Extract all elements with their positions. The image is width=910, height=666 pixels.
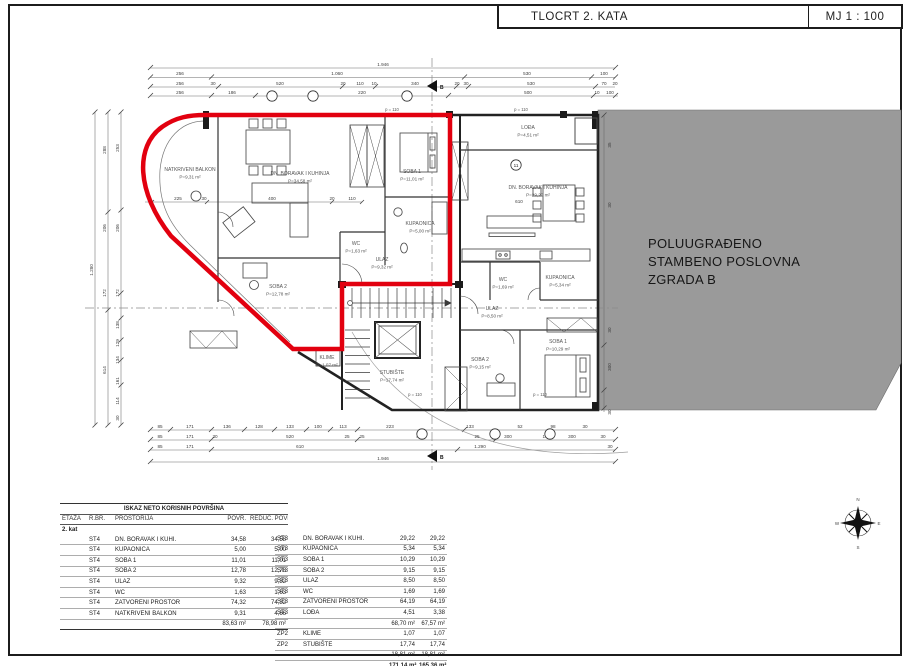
area-table-cell: ST4 — [87, 577, 113, 588]
dim-label: 25 — [359, 434, 365, 439]
dim-label: 225 — [174, 196, 182, 201]
building-b-line1: POLUUGRAĐENO — [648, 236, 762, 251]
area-table-cell: 9,32 — [210, 577, 248, 588]
area-table-cell — [60, 545, 87, 556]
dim-label: 110 — [348, 196, 356, 201]
area-table-cell: ST4 — [87, 545, 113, 556]
room-name-label: SOBA 1 — [403, 169, 421, 175]
dim-label: 1.290 — [474, 444, 486, 449]
area-table-cell: DN. BORAVAK I KUHI. — [301, 534, 387, 544]
area-table-cell: SOBA 1 — [301, 555, 387, 566]
area-table-cell: 12,78 — [210, 566, 248, 577]
area-table-cell: 1,07 — [417, 629, 447, 640]
dim-label: 520 — [276, 81, 284, 86]
dim-label: 256 — [176, 71, 184, 76]
area-table-cell: 8,50 — [417, 576, 447, 587]
dim-label: 30 — [582, 424, 588, 429]
compass-letter: N — [856, 497, 859, 502]
dim-label: 1.060 — [331, 71, 343, 76]
area-table-cell: ZATVORENI PROSTOR — [113, 598, 210, 609]
dim-label: 30 — [600, 434, 606, 439]
area-table-cell: 9,15 — [387, 565, 417, 576]
room-name-label: KUPAONICA — [545, 275, 575, 281]
axis-bubble — [417, 429, 427, 439]
area-table-cell: WC — [113, 587, 210, 598]
dim-label: 340 — [411, 81, 419, 86]
area-table-cell: 9,31 — [210, 608, 248, 619]
dim-label: 288 — [102, 146, 107, 154]
area-table-cell: ST4 — [87, 535, 113, 545]
dim-label: 530 — [527, 81, 535, 86]
area-table-cell: 68,70 m² — [387, 618, 417, 629]
area-table-cell: 64,19 — [417, 597, 447, 608]
area-table-cell — [275, 618, 301, 629]
area-table-cell: 171,14 m² — [387, 661, 417, 666]
compass-letter: S — [856, 545, 859, 550]
area-table-cell: 18,81 m² — [387, 650, 417, 661]
room-area-label: P=9,32 m² — [371, 265, 393, 270]
dim-label: 85 — [157, 444, 163, 449]
area-table-cell — [60, 566, 87, 577]
compass-letter: E — [877, 521, 880, 526]
dim-label: 610 — [515, 199, 523, 204]
area-table-st4: ISKAZ NETO KORISNIH POVRŠINA ETAŽA R.BR.… — [60, 503, 288, 630]
col-etaza: ETAŽA — [60, 514, 87, 525]
dim-label: 186 — [228, 90, 236, 95]
armchair-st4 — [223, 207, 255, 238]
area-table-cell: DN. BORAVAK I KUHI. — [113, 535, 210, 545]
dim-label: 134 — [115, 356, 120, 364]
dim-label: 30 — [607, 444, 613, 449]
area-table-cell: KLIME — [301, 629, 387, 640]
area-table-cell: ST3 — [275, 534, 301, 544]
room-area-label: P=9,15 m² — [469, 365, 491, 370]
area-table-cell: SOBA 1 — [113, 555, 210, 566]
col-reduc: REDUC. POVRŠINA — [248, 514, 288, 525]
area-table-cell: ST3 — [275, 597, 301, 608]
area-table-cell: 4,51 — [387, 608, 417, 619]
area-table-cell: ST4 — [87, 566, 113, 577]
axis-bubble — [545, 429, 555, 439]
bed-st4 — [400, 133, 437, 172]
dim-label: 20 — [329, 196, 335, 201]
axis-bubble — [308, 91, 318, 101]
dim-label: 30 — [607, 202, 612, 208]
dim-label: 300 — [607, 363, 612, 371]
area-table-cell — [275, 661, 301, 666]
dim-label: 30 — [210, 81, 216, 86]
area-table-cell: 1,69 — [387, 586, 417, 597]
dim-label: 300 — [504, 434, 512, 439]
wall-columns — [203, 111, 598, 410]
sofa-st4 — [252, 183, 308, 203]
area-table-cell: ZP2 — [275, 639, 301, 650]
room-area-label: P=1,69 m² — [492, 285, 514, 290]
area-table-cell: ST4 — [87, 608, 113, 619]
area-table-cell: 1,07 — [387, 629, 417, 640]
dim-label: 1.946 — [377, 62, 389, 67]
area-table-cell — [301, 618, 387, 629]
dim-label: 400 — [268, 196, 276, 201]
room-area-label: P=29,22 m² — [526, 193, 550, 198]
room-area-label: P=10,29 m² — [546, 347, 570, 352]
dim-label: 30 — [607, 409, 612, 415]
room-name-label: SOBA 1 — [549, 339, 567, 345]
area-table-cell: WC — [301, 586, 387, 597]
dim-label: 138 — [115, 321, 120, 329]
dim-label: 25 — [344, 434, 350, 439]
area-table-cell: 34,58 — [210, 535, 248, 545]
dim-label: 25 — [474, 434, 480, 439]
area-table-cell: 9,15 — [417, 565, 447, 576]
bed-st3 — [545, 355, 590, 397]
dim-label: 52 — [517, 424, 523, 429]
axis-bubble — [267, 91, 277, 101]
dim-label: 10 — [594, 90, 600, 95]
dim-label: 85 — [157, 424, 163, 429]
area-table-cell: 11,01 — [210, 555, 248, 566]
room-name-label: ULAZ — [486, 306, 499, 312]
area-table-cell: 5,34 — [417, 544, 447, 555]
area-table-cell: 165,36 m² — [417, 661, 447, 666]
dim-label: 128 — [255, 424, 263, 429]
room-area-label: P=8,50 m² — [481, 314, 503, 319]
area-table-cell: STUBIŠTE — [301, 639, 387, 650]
dim-label: 1.280 — [89, 264, 94, 276]
area-table-cell: KUPAONICA — [301, 544, 387, 555]
dim-label: 610 — [296, 444, 304, 449]
parapet-label: p = 110 — [533, 392, 547, 397]
area-table-cell — [301, 650, 387, 661]
dim-label: 171 — [186, 424, 194, 429]
area-table-cell: ST4 — [87, 555, 113, 566]
dim-label: 136 — [223, 424, 231, 429]
dim-label: 133 — [466, 424, 474, 429]
dim-label: 110 — [356, 81, 364, 86]
area-table-cell: 74,32 — [210, 598, 248, 609]
room-name-label: LOĐA — [521, 125, 535, 131]
dim-label: 223 — [386, 424, 394, 429]
dim-label: 30 — [201, 196, 207, 201]
dining-table-st4 — [246, 130, 290, 164]
st4-total-povr: 83,63 m² — [210, 619, 248, 630]
room-area-label: P=34,58 m² — [288, 179, 312, 184]
area-table-title: ISKAZ NETO KORISNIH POVRŠINA — [60, 504, 288, 515]
dim-label: 1.946 — [377, 456, 389, 461]
area-table-cell: ULAZ — [301, 576, 387, 587]
room-name-label: ULAZ — [376, 257, 389, 263]
area-table-cell: ST3 — [275, 586, 301, 597]
area-table-cell — [301, 661, 387, 666]
dim-label: 172 — [115, 289, 120, 297]
area-table-cell: ST4 — [87, 587, 113, 598]
area-table-cell: LOĐA — [301, 608, 387, 619]
area-table-cell: 67,57 m² — [417, 618, 447, 629]
dim-label: 98 — [550, 424, 556, 429]
dim-label: 70 — [601, 81, 607, 86]
axis-bubble — [490, 429, 500, 439]
area-table-cell: ZATVORENI PROSTOR — [301, 597, 387, 608]
area-table-cell: 5,00 — [210, 545, 248, 556]
room-area-label: P=5,00 m² — [409, 229, 431, 234]
room-name-label: SOBA 2 — [471, 357, 489, 363]
dim-label: 253 — [115, 144, 120, 152]
area-table-cell: 1,63 — [210, 587, 248, 598]
dim-label: 206 — [102, 224, 107, 232]
dim-label: 530 — [523, 71, 531, 76]
room-area-label: P=4,51 m² — [517, 133, 539, 138]
dim-label: 220 — [358, 90, 366, 95]
dim-label: 30 — [463, 81, 469, 86]
parapet-label: p = 110 — [408, 392, 422, 397]
dim-label: 256 — [176, 81, 184, 86]
dim-label: 20 — [340, 81, 346, 86]
dim-label: 161 — [115, 377, 120, 385]
room-name-label: KUPAONICA — [405, 221, 435, 227]
area-table-cell: 29,22 — [387, 534, 417, 544]
room-name-label: WC — [352, 241, 361, 247]
area-table-cell: ST3 — [275, 608, 301, 619]
room-name-label: STUBIŠTE — [380, 369, 405, 376]
building-b-line2: STAMBENO POSLOVNA — [648, 254, 800, 269]
dim-label: 520 — [286, 434, 294, 439]
parapet-label: p = 110 — [385, 107, 399, 112]
dim-label: 100 — [314, 424, 322, 429]
area-table-cell: 64,19 — [387, 597, 417, 608]
dim-label: 171 — [186, 434, 194, 439]
area-table-cell: 10,29 — [387, 555, 417, 566]
col-rbr: R.BR. — [87, 514, 113, 525]
dim-label: 206 — [115, 224, 120, 232]
dim-label: 35 — [607, 142, 612, 148]
dim-label: 129 — [115, 339, 120, 347]
building-b-line3: ZGRADA B — [648, 272, 716, 287]
room-area-label: P=17,74 m² — [380, 378, 404, 383]
dim-label: 30 — [607, 327, 612, 333]
axis-bubble-number: 11 — [514, 163, 519, 168]
area-table-cell: KUPAONICA — [113, 545, 210, 556]
area-table-cell: 18,81 m² — [417, 650, 447, 661]
dim-label: 114 — [115, 397, 120, 405]
area-table-cell: ZP2 — [275, 629, 301, 640]
compass-letter: W — [835, 521, 840, 526]
area-table-cell: 5,34 — [387, 544, 417, 555]
dim-label: 20 — [454, 81, 460, 86]
area-table-cell: ST3 — [275, 576, 301, 587]
area-table-cell: ULAZ — [113, 577, 210, 588]
section-markers: B B — [427, 80, 444, 462]
room-name-label: WC — [499, 277, 508, 283]
area-table-cell — [275, 650, 301, 661]
room-area-label: P=1,07 m² — [316, 363, 338, 368]
area-table-cell — [60, 535, 87, 545]
apartment-st4-outline — [143, 115, 450, 349]
axis-lines — [85, 58, 628, 470]
area-table-cell — [60, 608, 87, 619]
area-table-cell: ST3 — [275, 565, 301, 576]
area-table-cell: ST3 — [275, 544, 301, 555]
building-b-block: POLUUGRAĐENO STAMBENO POSLOVNA ZGRADA B — [598, 110, 901, 410]
area-table-cell — [60, 555, 87, 566]
elevator — [375, 322, 420, 358]
dim-label: 614 — [102, 366, 107, 374]
area-table-cell: 17,74 — [417, 639, 447, 650]
dim-label: 30 — [115, 415, 120, 421]
area-table-cell — [60, 587, 87, 598]
floor-label: 2. kat — [60, 525, 288, 535]
dim-label: 171 — [186, 444, 194, 449]
section-letter-bottom: B — [440, 455, 444, 461]
room-name-label: DN. BORAVAK I KUHINJA — [509, 185, 569, 191]
room-area-label: P=11,01 m² — [400, 177, 424, 182]
room-name-label: NATKRIVENI BALKON — [164, 167, 216, 173]
area-table-cell — [60, 577, 87, 588]
dim-label: 85 — [157, 434, 163, 439]
room-name-label: DN. BORAVAK I KUHINJA — [271, 171, 331, 177]
room-name-label: KLIME — [319, 355, 335, 361]
dim-label: 100 — [600, 71, 608, 76]
dim-label: 500 — [524, 90, 532, 95]
area-table-st3: ST3DN. BORAVAK I KUHI.29,2229,22ST3KUPAO… — [275, 534, 447, 666]
area-table-cell: 8,50 — [387, 576, 417, 587]
dim-label: 20 — [612, 81, 618, 86]
area-table-cell: ST4 — [87, 598, 113, 609]
dim-label: 30 — [212, 434, 218, 439]
room-area-label: P=9,31 m² — [179, 175, 201, 180]
drawing-sheet: TLOCRT 2. KATA MJ 1 : 100 POLUUGRAĐENO S… — [0, 0, 910, 666]
furniture — [190, 118, 597, 411]
section-letter-top: B — [440, 85, 444, 91]
area-table-cell: 29,22 — [417, 534, 447, 544]
area-table-cell: ST3 — [275, 555, 301, 566]
dim-label: 256 — [176, 90, 184, 95]
area-table-cell: 10,29 — [417, 555, 447, 566]
col-povr: POVR. — [210, 514, 248, 525]
dim-label: 100 — [606, 90, 614, 95]
room-area-label: P=1,63 m² — [345, 249, 367, 254]
area-table-cell: SOBA 2 — [301, 565, 387, 576]
parapet-label: p = 110 — [514, 107, 528, 112]
room-area-label: P=12,78 m² — [266, 292, 290, 297]
area-table-cell — [60, 598, 87, 609]
dim-label: 133 — [286, 424, 294, 429]
dim-label: 172 — [102, 289, 107, 297]
area-table-cell: 1,69 — [417, 586, 447, 597]
room-area-label: P=5,34 m² — [549, 283, 571, 288]
room-name-label: SOBA 2 — [269, 284, 287, 290]
dim-label: 113 — [339, 424, 347, 429]
area-table-cell: SOBA 2 — [113, 566, 210, 577]
compass-rose: NESW — [835, 497, 881, 550]
dim-label: 300 — [568, 434, 576, 439]
axis-bubble — [402, 91, 412, 101]
area-table-cell: 3,38 — [417, 608, 447, 619]
area-table-cell: NATKRIVENI BALKON — [113, 608, 210, 619]
axis-bubbles: 11 — [267, 91, 555, 439]
col-prostorija: PROSTORIJA — [113, 514, 210, 525]
dim-label: 10 — [371, 81, 377, 86]
area-table-cell: 17,74 — [387, 639, 417, 650]
